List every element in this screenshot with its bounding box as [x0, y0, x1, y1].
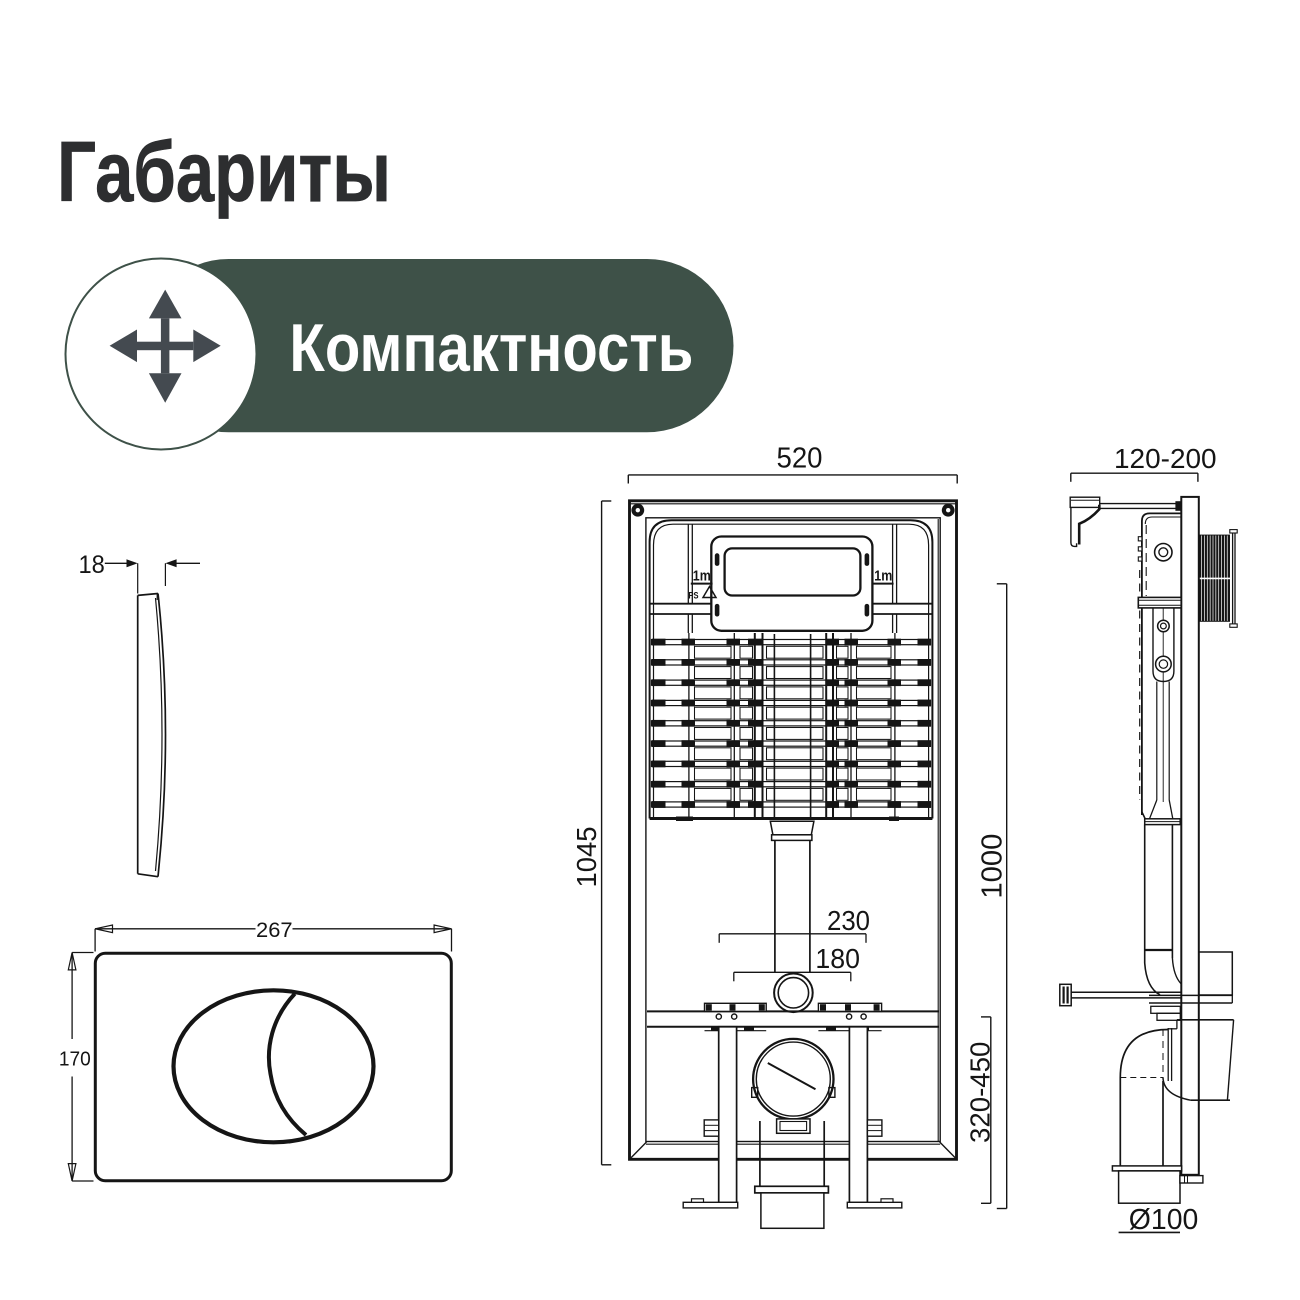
svg-text:1045: 1045	[571, 827, 602, 888]
svg-text:18: 18	[79, 551, 105, 579]
svg-text:120-200: 120-200	[1114, 443, 1217, 474]
svg-text:1m: 1m	[874, 568, 892, 585]
svg-text:267: 267	[256, 919, 293, 942]
svg-text:320-450: 320-450	[965, 1042, 996, 1143]
svg-text:1m: 1m	[693, 568, 711, 585]
svg-text:Компактность: Компактность	[289, 310, 693, 386]
svg-text:Габариты: Габариты	[57, 125, 391, 220]
svg-text:180: 180	[815, 943, 860, 974]
svg-text:170: 170	[59, 1047, 91, 1070]
svg-text:230: 230	[827, 905, 870, 936]
svg-text:Ø100: Ø100	[1129, 1204, 1199, 1236]
svg-text:520: 520	[777, 442, 823, 474]
svg-text:1000: 1000	[977, 834, 1009, 899]
svg-text:PS: PS	[689, 591, 699, 601]
